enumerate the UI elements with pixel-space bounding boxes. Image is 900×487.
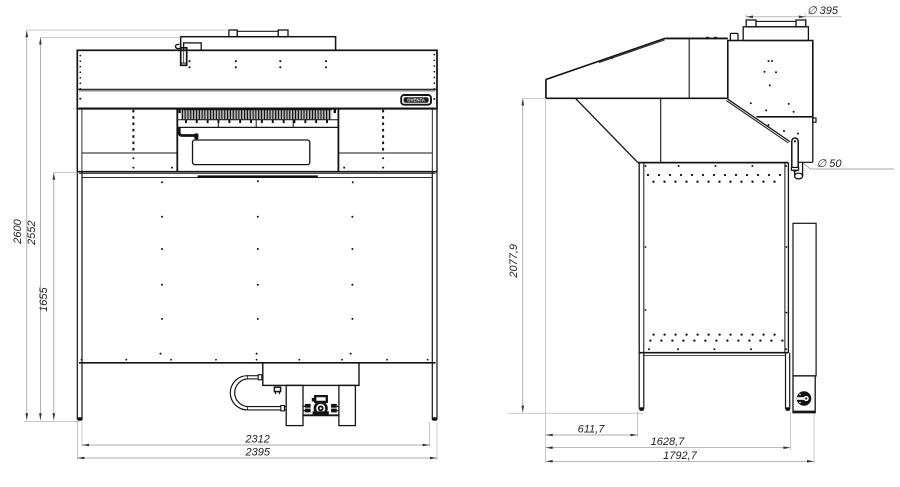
svg-text:OVENTA: OVENTA: [407, 98, 425, 103]
svg-text:∅ 50: ∅ 50: [817, 158, 843, 170]
svg-text:2600: 2600: [12, 218, 24, 244]
svg-text:1792,7: 1792,7: [663, 450, 698, 462]
svg-text:2312: 2312: [244, 434, 269, 446]
svg-text:1655: 1655: [38, 286, 50, 311]
svg-text:∅ 395: ∅ 395: [807, 5, 839, 17]
svg-text:2077,9: 2077,9: [508, 244, 520, 279]
svg-text:2395: 2395: [245, 447, 271, 459]
svg-text:2552: 2552: [26, 220, 38, 245]
svg-text:1628,7: 1628,7: [651, 436, 686, 448]
svg-text:611,7: 611,7: [578, 423, 606, 435]
